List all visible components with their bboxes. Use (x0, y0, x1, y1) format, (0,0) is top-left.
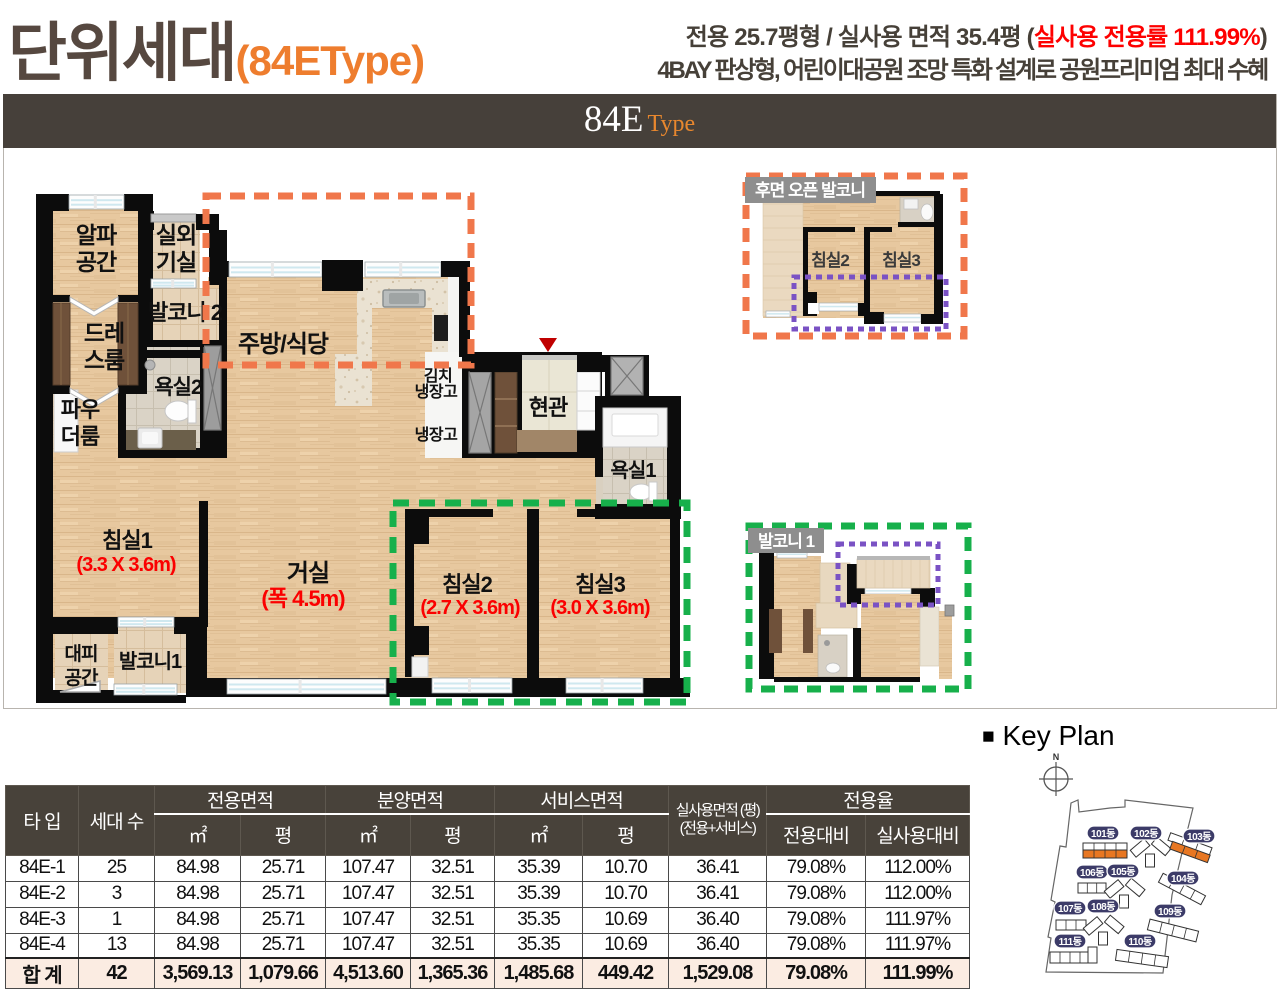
svg-text:침실3: 침실3 (575, 572, 625, 597)
svg-text:101동: 101동 (1091, 828, 1115, 840)
svg-text:발코니1: 발코니1 (119, 650, 182, 673)
svg-text:알파: 알파 (76, 222, 117, 248)
svg-text:발코니 1: 발코니 1 (758, 532, 815, 551)
svg-text:침실2: 침실2 (442, 572, 492, 597)
svg-text:103동: 103동 (1187, 831, 1211, 843)
svg-text:(3.3 X 3.6m): (3.3 X 3.6m) (76, 554, 176, 576)
svg-text:김치: 김치 (424, 366, 452, 385)
svg-text:107동: 107동 (1058, 903, 1082, 915)
svg-text:침실3: 침실3 (882, 250, 920, 270)
svg-text:111동: 111동 (1059, 936, 1082, 948)
svg-text:109동: 109동 (1158, 906, 1182, 918)
svg-text:욕실1: 욕실1 (611, 459, 657, 482)
svg-text:드레: 드레 (84, 320, 124, 346)
svg-text:(폭 4.5m): (폭 4.5m) (261, 586, 345, 611)
svg-text:대피: 대피 (65, 643, 98, 665)
svg-text:102동: 102동 (1134, 828, 1158, 840)
svg-text:더룸: 더룸 (61, 424, 100, 449)
svg-text:(3.0 X 3.6m): (3.0 X 3.6m) (550, 597, 650, 619)
svg-text:주방/식당: 주방/식당 (238, 331, 329, 358)
svg-text:냉장고: 냉장고 (415, 383, 458, 401)
svg-text:현관: 현관 (529, 395, 568, 420)
svg-text:발코니 2: 발코니 2 (148, 300, 223, 325)
svg-text:욕실2: 욕실2 (154, 376, 202, 399)
svg-text:침실1: 침실1 (102, 528, 152, 553)
svg-text:스룸: 스룸 (84, 347, 125, 373)
svg-text:105동: 105동 (1111, 866, 1135, 878)
svg-text:104동: 104동 (1171, 873, 1195, 885)
svg-text:기실: 기실 (156, 249, 196, 275)
svg-text:공간: 공간 (76, 249, 117, 275)
svg-text:공간: 공간 (65, 667, 99, 689)
svg-text:(2.7 X 3.6m): (2.7 X 3.6m) (420, 597, 520, 619)
svg-text:거실: 거실 (287, 560, 329, 587)
svg-text:파우: 파우 (61, 397, 100, 422)
svg-text:냉장고: 냉장고 (415, 426, 458, 444)
svg-text:침실2: 침실2 (811, 250, 849, 270)
svg-text:N: N (1053, 752, 1060, 762)
svg-text:108동: 108동 (1091, 901, 1115, 913)
svg-text:후면 오픈 발코니: 후면 오픈 발코니 (755, 180, 865, 200)
svg-text:106동: 106동 (1080, 867, 1104, 879)
svg-text:실외: 실외 (156, 222, 196, 248)
svg-text:110동: 110동 (1128, 936, 1152, 948)
